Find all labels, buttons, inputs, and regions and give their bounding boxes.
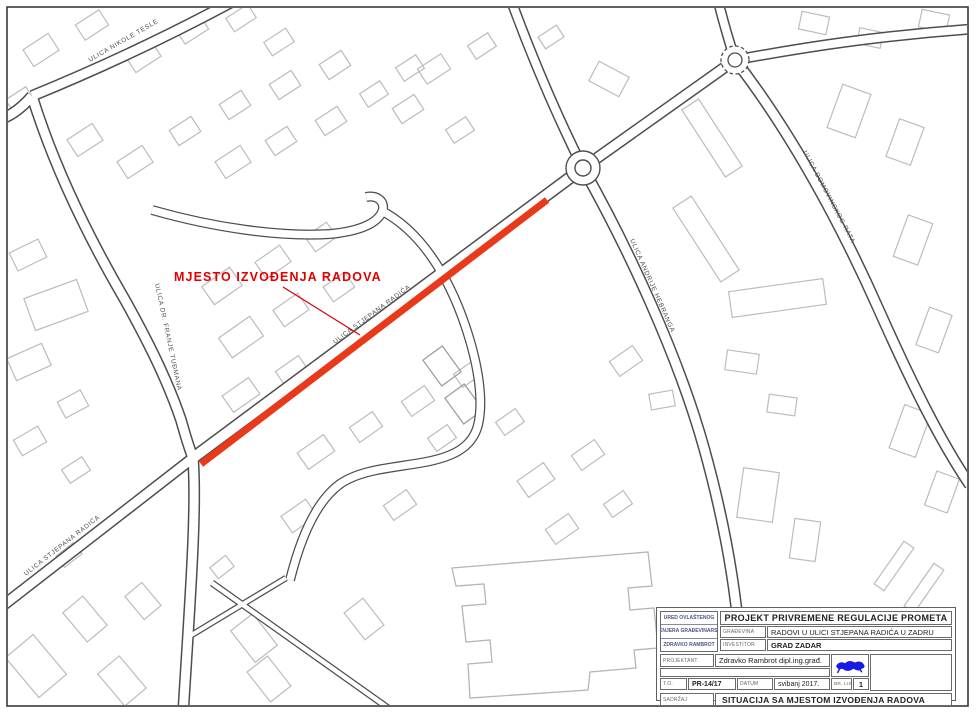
empty-cell xyxy=(660,668,830,677)
project-title: PROJEKT PRIVREMENE REGULACIJE PROMETA xyxy=(720,611,952,625)
roundabout-1 xyxy=(566,151,600,185)
work-zone-label: MJESTO IZVOĐENJA RADOVA xyxy=(174,270,382,284)
office-line1: URED OVLAŠTENOG xyxy=(661,612,717,625)
office-box: URED OVLAŠTENOG INŽENJERA GRAĐEVINARSTVA… xyxy=(660,611,718,652)
sadrzaj-value: SITUACIJA SA MJESTOM IZVOĐENJA RADOVA xyxy=(715,693,952,706)
signature-stamp xyxy=(831,654,869,677)
gradevina-label: GRAĐEVINA xyxy=(720,626,766,638)
investitor-label: INVESTITOR xyxy=(720,639,766,651)
br-lista-value: 1 xyxy=(853,678,869,690)
office-line2: INŽENJERA GRAĐEVINARSTVA xyxy=(661,625,717,638)
datum-value: svibanj 2017. xyxy=(774,678,830,690)
projektant-value: Zdravko Rambrot dipl.ing.građ. xyxy=(715,654,830,667)
to-value: PR-14/17 xyxy=(688,678,736,690)
roundabout-2 xyxy=(721,46,749,74)
empty-cell xyxy=(870,654,952,691)
title-block: URED OVLAŠTENOG INŽENJERA GRAĐEVINARSTVA… xyxy=(656,607,956,701)
sadrzaj-label: SADRŽAJ xyxy=(660,693,714,706)
to-label: T.O. xyxy=(660,678,687,690)
stamp-icon xyxy=(834,657,866,675)
projektant-label: PROJEKTANT xyxy=(660,654,714,667)
office-line3: ZDRAVKO RAMBROT xyxy=(661,639,717,651)
datum-label: DATUM xyxy=(737,678,773,690)
drawing-sheet: MJESTO IZVOĐENJA RADOVA ULICA NIKOLE TES… xyxy=(0,0,979,715)
investitor-value: GRAD ZADAR xyxy=(767,639,952,651)
br-lista-label: BR. LISTA xyxy=(831,678,852,690)
gradevina-value: RADOVI U ULICI STJEPANA RADIĆA U ZADRU xyxy=(767,626,952,638)
